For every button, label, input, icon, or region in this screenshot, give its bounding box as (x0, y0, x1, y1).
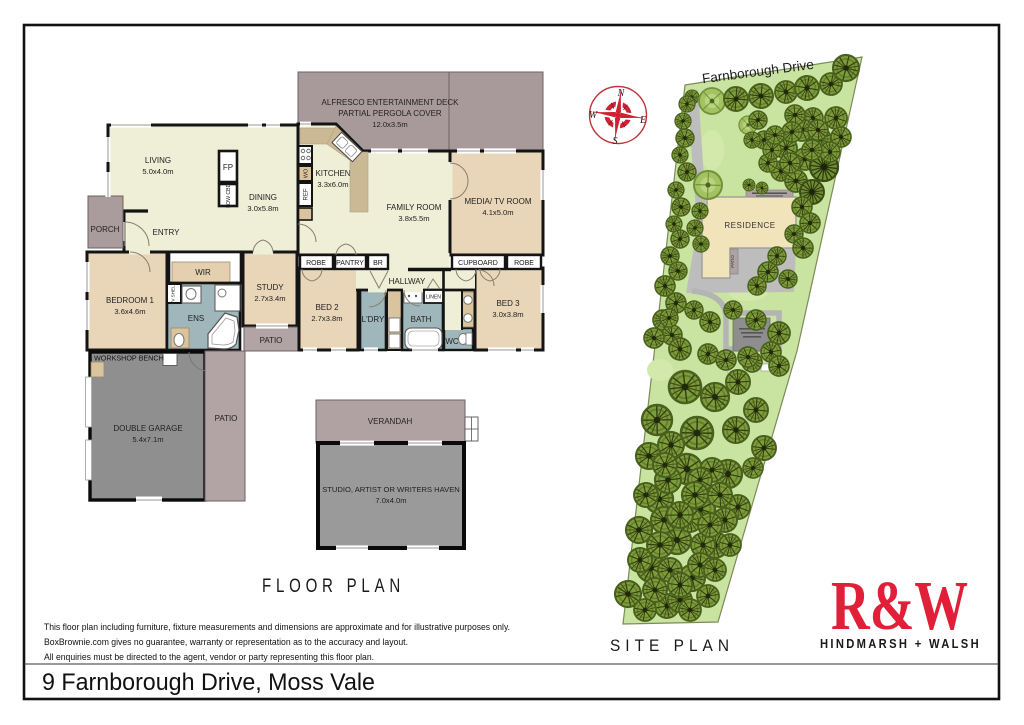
svg-text:REF: REF (304, 188, 310, 200)
svg-text:STUDIO, ARTIST OR WRITERS HAVE: STUDIO, ARTIST OR WRITERS HAVEN (322, 485, 460, 494)
svg-text:DINING: DINING (249, 193, 277, 202)
svg-text:HALLWAY: HALLWAY (389, 277, 426, 286)
svg-text:WC: WC (445, 337, 459, 346)
svg-text:SITE PLAN: SITE PLAN (610, 636, 734, 655)
svg-text:E: E (639, 115, 646, 126)
svg-text:5.4x7.1m: 5.4x7.1m (132, 435, 163, 444)
svg-text:4.1x5.0m: 4.1x5.0m (482, 208, 513, 217)
svg-text:S: S (613, 136, 618, 147)
svg-text:WIR: WIR (195, 268, 211, 277)
svg-text:WO: WO (304, 169, 310, 178)
svg-text:WORKSHOP BENCH: WORKSHOP BENCH (94, 354, 164, 363)
svg-text:ENTRY: ENTRY (153, 228, 181, 237)
svg-text:3.0x3.8m: 3.0x3.8m (492, 310, 523, 319)
svg-text:PATIO: PATIO (215, 414, 238, 423)
svg-text:BEDROOM 1: BEDROOM 1 (106, 296, 155, 305)
svg-text:TV SHELF: TV SHELF (171, 282, 176, 304)
svg-text:ROBE: ROBE (514, 260, 534, 267)
svg-text:ROBE: ROBE (306, 260, 326, 267)
svg-text:FAMILY ROOM: FAMILY ROOM (387, 203, 442, 212)
svg-text:FLOOR PLAN: FLOOR PLAN (262, 576, 405, 597)
svg-text:BR: BR (373, 260, 383, 267)
svg-text:L'DRY: L'DRY (362, 315, 385, 324)
svg-text:PARTIAL PERGOLA COVER: PARTIAL PERGOLA COVER (338, 109, 442, 118)
svg-text:LOW CBD.: LOW CBD. (226, 182, 232, 208)
svg-text:LINEN: LINEN (426, 295, 441, 301)
svg-text:2.7x3.4m: 2.7x3.4m (254, 294, 285, 303)
svg-text:ALFRESCO ENTERTAINMENT DECK: ALFRESCO ENTERTAINMENT DECK (322, 98, 460, 107)
svg-text:PATIO: PATIO (260, 336, 283, 345)
svg-text:CUPBOARD: CUPBOARD (458, 260, 498, 267)
svg-text:STUDY: STUDY (256, 283, 284, 292)
svg-text:LIVING: LIVING (145, 156, 171, 165)
svg-text:BED 2: BED 2 (315, 303, 339, 312)
svg-text:BED 3: BED 3 (496, 299, 520, 308)
svg-text:5.0x4.0m: 5.0x4.0m (142, 167, 173, 176)
svg-text:RESIDENCE: RESIDENCE (724, 221, 775, 230)
svg-text:BoxBrownie.com gives no guaran: BoxBrownie.com gives no guarantee, warra… (44, 637, 408, 647)
svg-text:7.0x4.0m: 7.0x4.0m (375, 496, 406, 505)
svg-text:3.0x5.8m: 3.0x5.8m (247, 204, 278, 213)
svg-text:3.8x5.5m: 3.8x5.5m (398, 214, 429, 223)
svg-text:MEDIA/ TV ROOM: MEDIA/ TV ROOM (465, 197, 532, 206)
svg-text:All enquiries must be directed: All enquiries must be directed to the ag… (44, 652, 374, 662)
svg-text:12.0x3.5m: 12.0x3.5m (372, 120, 407, 129)
svg-text:N: N (617, 88, 626, 99)
svg-text:FP: FP (223, 163, 233, 172)
svg-text:ENS: ENS (188, 314, 204, 323)
svg-text:3.3x6.0m: 3.3x6.0m (317, 180, 348, 189)
svg-text:9 Farnborough Drive, Moss Vale: 9 Farnborough Drive, Moss Vale (42, 669, 375, 696)
svg-text:2.7x3.8m: 2.7x3.8m (311, 314, 342, 323)
svg-text:VERANDAH: VERANDAH (368, 417, 413, 426)
svg-text:HINDMARSH + WALSH: HINDMARSH + WALSH (820, 637, 981, 651)
svg-text:This floor plan including furn: This floor plan including furniture, fix… (44, 622, 510, 632)
svg-text:PATIO: PATIO (730, 255, 735, 268)
svg-text:PORCH: PORCH (91, 225, 120, 234)
svg-text:3.6x4.6m: 3.6x4.6m (114, 307, 145, 316)
svg-text:DOUBLE GARAGE: DOUBLE GARAGE (113, 424, 182, 433)
svg-text:PANTRY: PANTRY (336, 260, 364, 267)
svg-text:R&W: R&W (831, 568, 968, 645)
svg-text:BATH: BATH (411, 315, 432, 324)
svg-text:KITCHEN: KITCHEN (315, 169, 350, 178)
